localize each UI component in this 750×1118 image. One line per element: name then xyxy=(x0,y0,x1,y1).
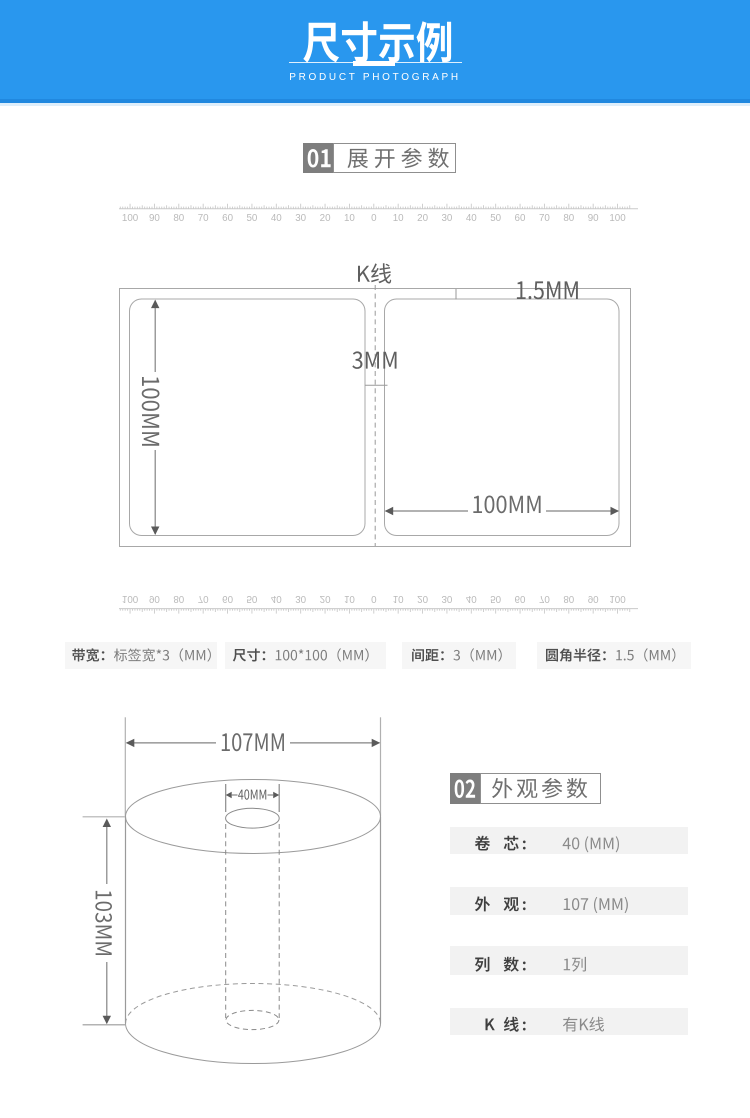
svg-text:0: 0 xyxy=(371,213,377,224)
svg-text:80: 80 xyxy=(563,593,574,604)
svg-text:50: 50 xyxy=(490,213,501,224)
svg-text:80: 80 xyxy=(173,593,184,604)
svg-text:100: 100 xyxy=(122,213,139,224)
svg-text:10: 10 xyxy=(393,213,404,224)
svg-text:20: 20 xyxy=(320,593,331,604)
svg-text:100: 100 xyxy=(122,593,139,604)
svg-text:20: 20 xyxy=(417,213,428,224)
svg-text:60: 60 xyxy=(515,593,526,604)
svg-text:90: 90 xyxy=(588,593,599,604)
svg-text:70: 70 xyxy=(539,213,550,224)
svg-text:10: 10 xyxy=(344,593,355,604)
svg-text:90: 90 xyxy=(149,213,160,224)
svg-text:100: 100 xyxy=(609,213,626,224)
svg-text:10: 10 xyxy=(344,213,355,224)
svg-text:60: 60 xyxy=(515,213,526,224)
svg-text:40: 40 xyxy=(271,213,282,224)
svg-text:90: 90 xyxy=(588,213,599,224)
svg-text:20: 20 xyxy=(417,593,428,604)
svg-text:50: 50 xyxy=(246,213,257,224)
svg-text:60: 60 xyxy=(222,213,233,224)
svg-text:70: 70 xyxy=(198,213,209,224)
svg-text:70: 70 xyxy=(539,593,550,604)
svg-text:0: 0 xyxy=(371,593,377,604)
svg-text:30: 30 xyxy=(441,593,452,604)
svg-text:100: 100 xyxy=(609,593,626,604)
svg-text:30: 30 xyxy=(295,593,306,604)
svg-text:30: 30 xyxy=(441,213,452,224)
svg-text:60: 60 xyxy=(222,593,233,604)
svg-text:40: 40 xyxy=(466,593,477,604)
svg-text:90: 90 xyxy=(149,593,160,604)
svg-text:20: 20 xyxy=(320,213,331,224)
svg-text:40: 40 xyxy=(271,593,282,604)
svg-text:10: 10 xyxy=(393,593,404,604)
svg-text:80: 80 xyxy=(173,213,184,224)
svg-text:50: 50 xyxy=(490,593,501,604)
svg-text:50: 50 xyxy=(246,593,257,604)
svg-text:70: 70 xyxy=(198,593,209,604)
svg-text:30: 30 xyxy=(295,213,306,224)
svg-text:80: 80 xyxy=(563,213,574,224)
svg-text:40: 40 xyxy=(466,213,477,224)
